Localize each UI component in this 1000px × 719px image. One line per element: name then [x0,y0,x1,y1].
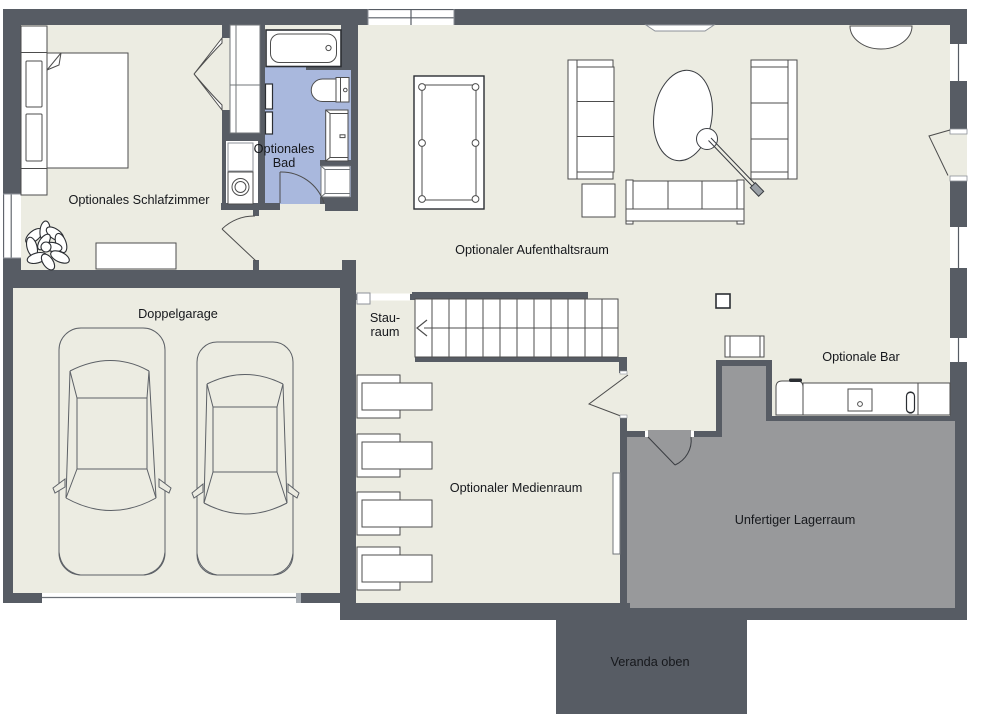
svg-text:Optionales: Optionales [254,142,315,156]
svg-text:Optionaler Medienraum: Optionaler Medienraum [450,481,583,495]
svg-text:Stau-: Stau- [370,311,400,325]
svg-text:Unfertiger Lagerraum: Unfertiger Lagerraum [735,513,856,527]
svg-text:Optionale Bar: Optionale Bar [822,350,900,364]
svg-text:Optionales Schlafzimmer: Optionales Schlafzimmer [68,193,210,207]
svg-text:raum: raum [371,325,400,339]
svg-text:Doppelgarage: Doppelgarage [138,307,218,321]
svg-text:Bad: Bad [273,156,296,170]
svg-text:Optionaler Aufenthaltsraum: Optionaler Aufenthaltsraum [455,243,609,257]
svg-text:Veranda oben: Veranda oben [610,655,689,669]
